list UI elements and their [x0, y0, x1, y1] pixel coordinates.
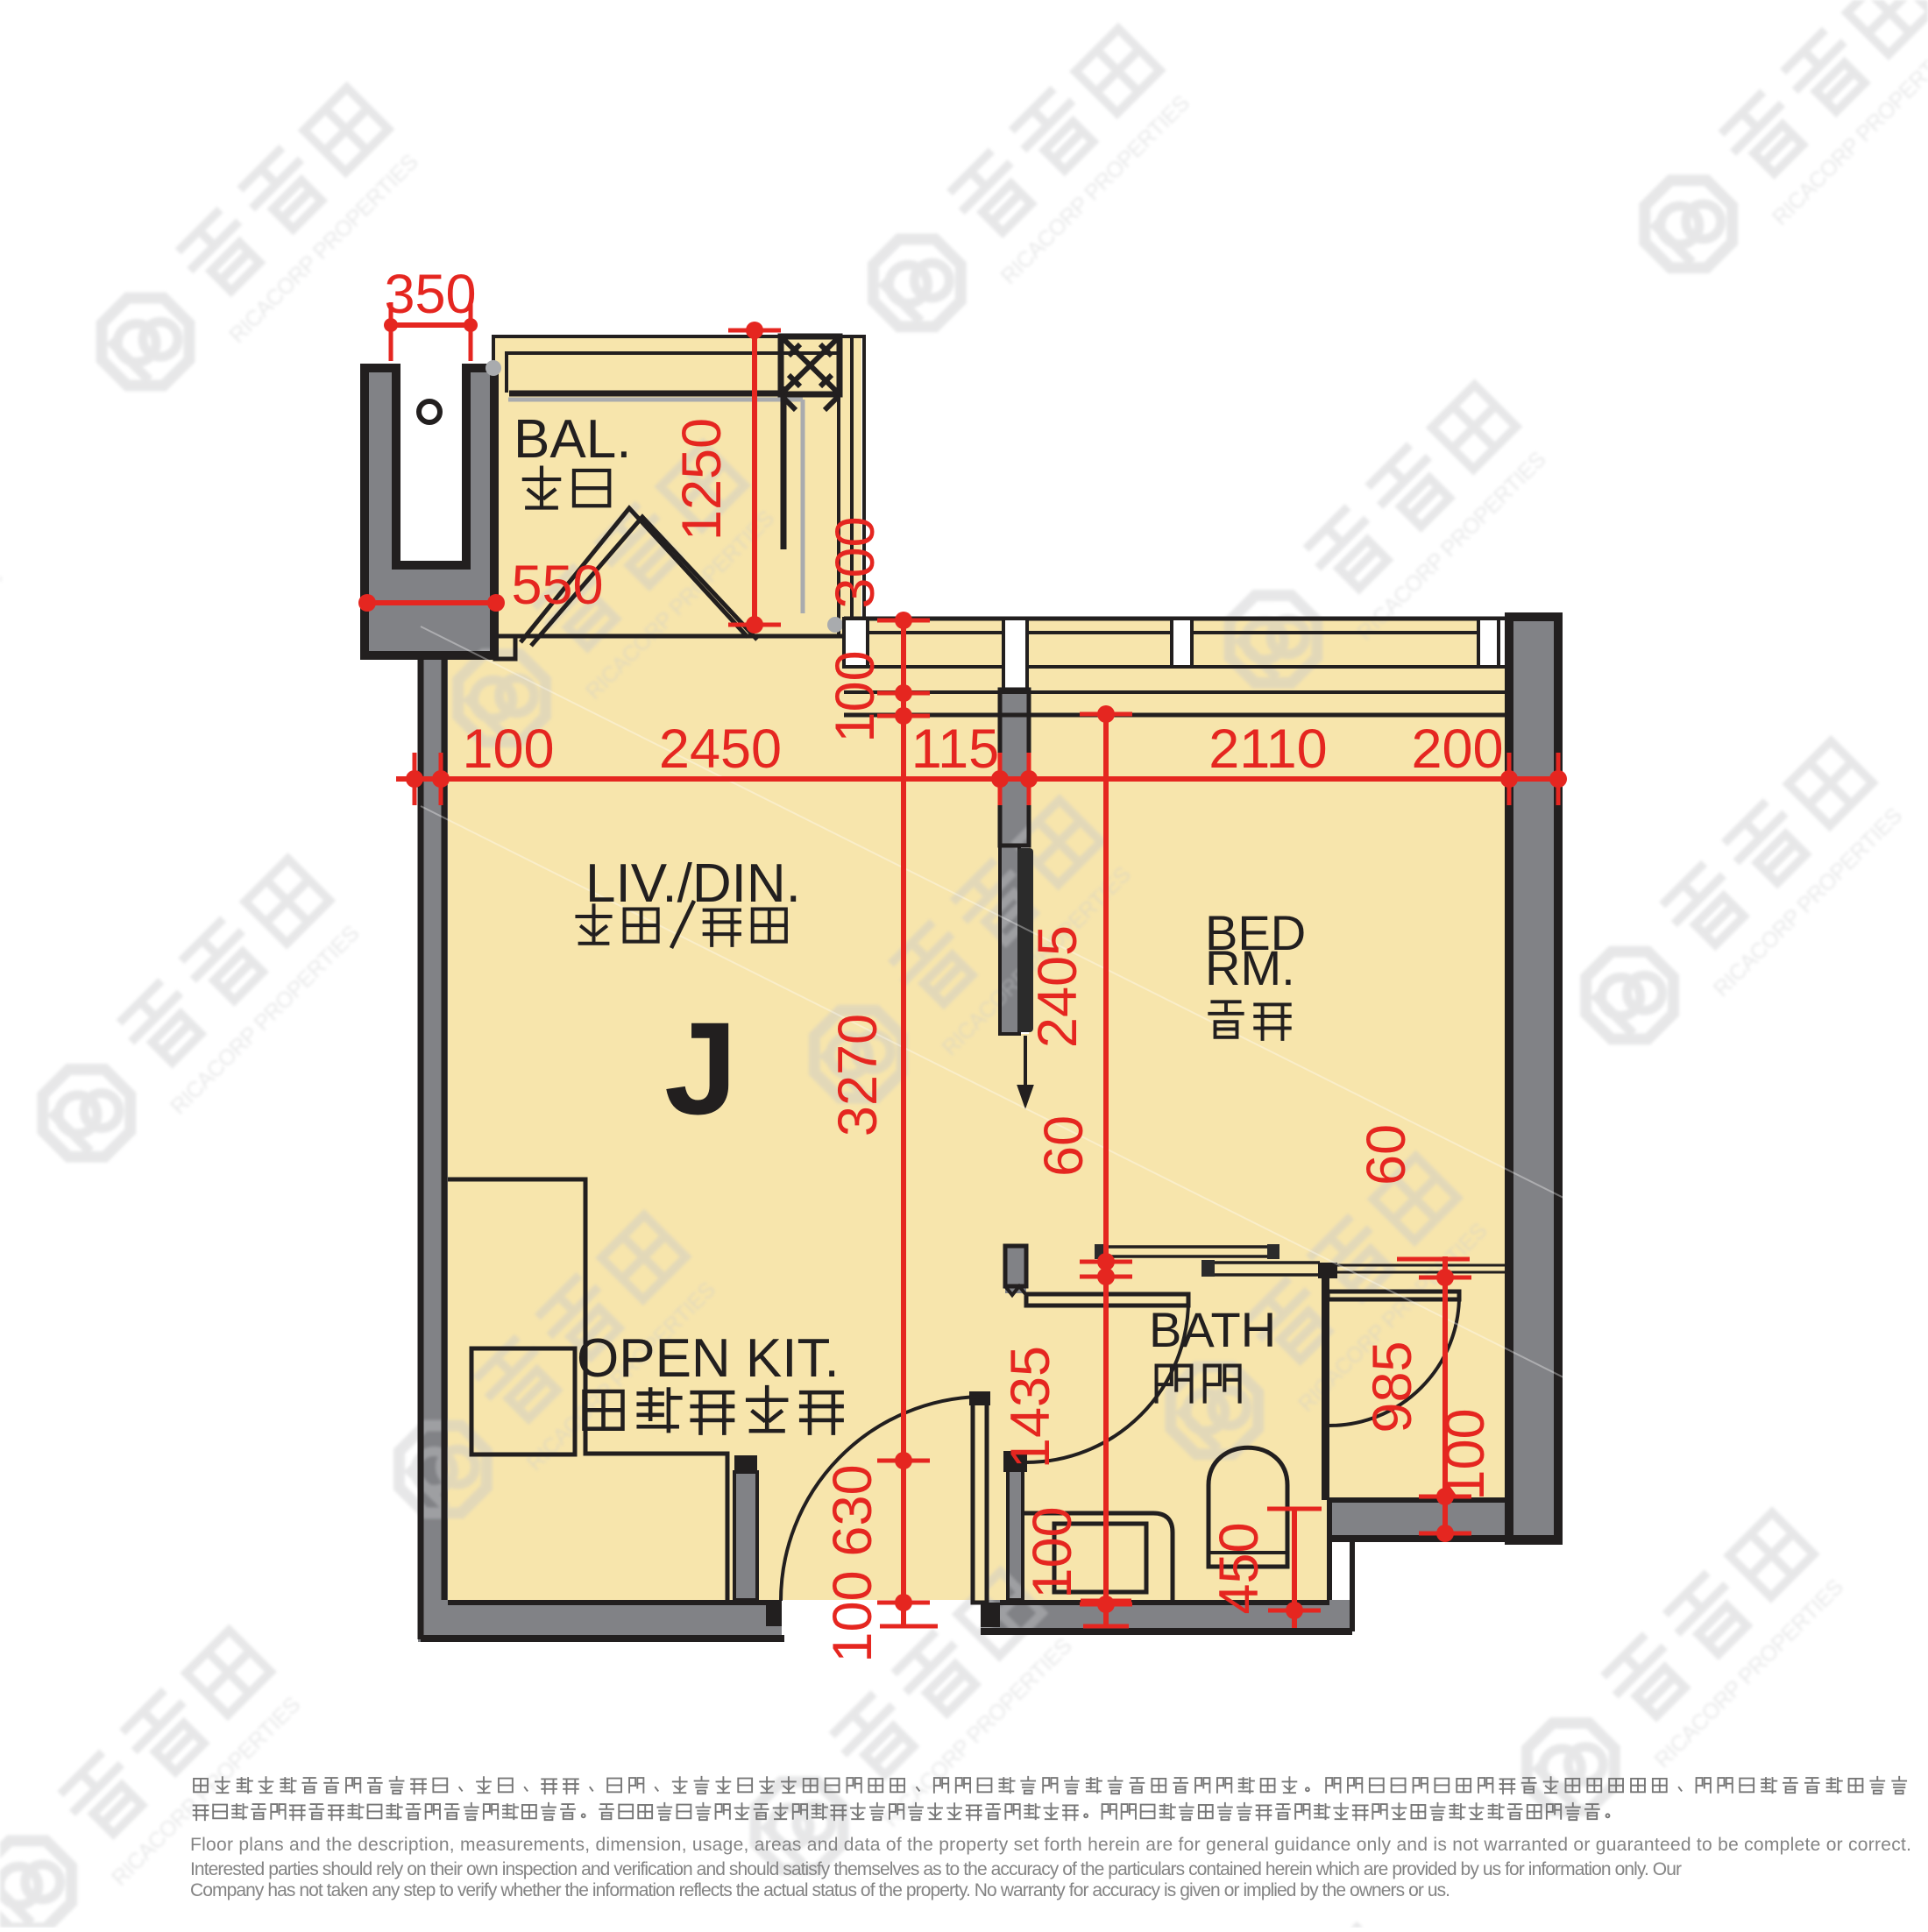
svg-text:Floor plans and the descriptio: Floor plans and the description, measure…: [190, 1835, 1911, 1855]
svg-text:60: 60: [1356, 1124, 1417, 1185]
svg-text:100: 100: [825, 650, 886, 742]
svg-text:300: 300: [825, 516, 886, 608]
svg-text:2450: 2450: [659, 718, 782, 780]
svg-text:100: 100: [822, 1570, 883, 1662]
svg-text:450: 450: [1209, 1522, 1270, 1614]
svg-text:3270: 3270: [827, 1014, 889, 1136]
svg-text:100: 100: [1435, 1408, 1496, 1500]
svg-text:2405: 2405: [1027, 925, 1088, 1048]
svg-text:1435: 1435: [1000, 1346, 1061, 1468]
svg-text:1250: 1250: [671, 418, 733, 541]
svg-text:Company has not taken any step: Company has not taken any step to verify…: [190, 1880, 1450, 1900]
svg-text:200: 200: [1411, 718, 1503, 780]
svg-text:985: 985: [1362, 1341, 1423, 1433]
svg-text:BATH: BATH: [1149, 1302, 1276, 1357]
svg-text:2110: 2110: [1209, 718, 1327, 780]
svg-text:RM.: RM.: [1205, 940, 1295, 995]
svg-text:100: 100: [462, 718, 554, 780]
svg-text:630: 630: [822, 1464, 883, 1556]
svg-text:BAL.: BAL.: [514, 409, 631, 470]
svg-text:Interested parties should rely: Interested parties should rely on their …: [190, 1859, 1682, 1879]
svg-text:J: J: [664, 994, 737, 1142]
svg-text:60: 60: [1033, 1115, 1095, 1177]
svg-text:350: 350: [384, 264, 476, 325]
svg-text:550: 550: [511, 555, 603, 616]
svg-text:OPEN KIT.: OPEN KIT.: [577, 1328, 840, 1389]
svg-text:115: 115: [911, 718, 999, 780]
svg-text:100: 100: [1022, 1506, 1083, 1598]
